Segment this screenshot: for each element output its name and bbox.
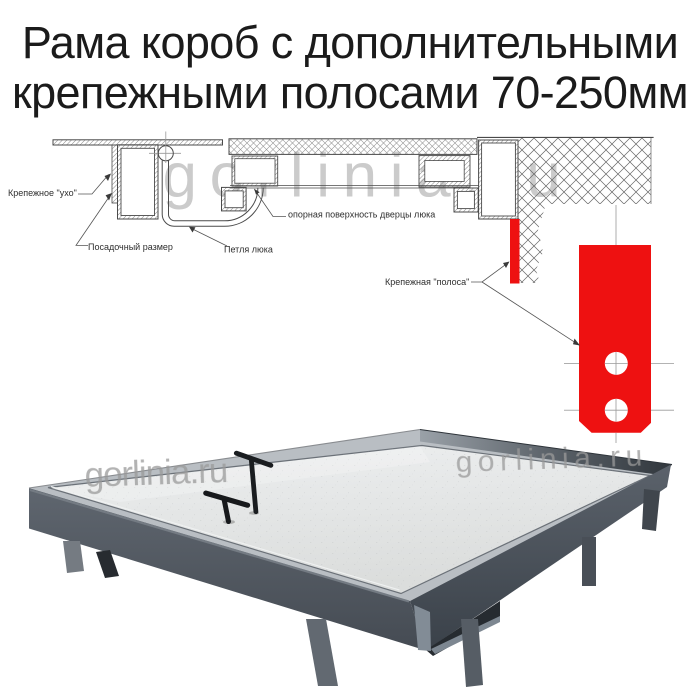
svg-text:Крепежная "полоса": Крепежная "полоса" — [385, 277, 469, 287]
svg-text:Петля люка: Петля люка — [224, 245, 273, 255]
svg-text:gorlinia.ru: gorlinia.ru — [455, 439, 648, 479]
svg-text:Рама короб с дополнительными: Рама короб с дополнительными — [22, 17, 678, 68]
svg-text:Посадочный размер: Посадочный размер — [88, 242, 173, 252]
svg-text:gorlinia.ru: gorlinia.ru — [84, 451, 228, 495]
svg-text:Крепежное "ухо": Крепежное "ухо" — [8, 188, 77, 198]
svg-text:опорная поверхность дверцы люк: опорная поверхность дверцы люка — [288, 210, 435, 220]
svg-text:крепежными полосами 70-250мм: крепежными полосами 70-250мм — [12, 67, 688, 118]
